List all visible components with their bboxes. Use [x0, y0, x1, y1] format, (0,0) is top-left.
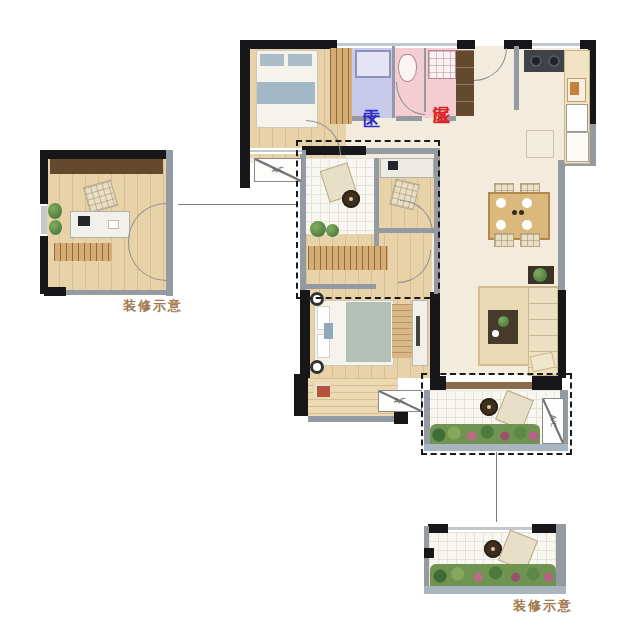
detail-study-wall-left-1: [40, 150, 48, 204]
stove-burner-left: [530, 55, 542, 67]
master-tv: [416, 316, 420, 346]
bedroom1-pillow-left: [260, 54, 284, 66]
toilet: [398, 54, 417, 82]
detail-balcony-block-left: [424, 548, 434, 558]
callout-connector-bottom: [496, 452, 497, 522]
ac-platform-bedroom1: A/C: [254, 158, 302, 182]
detail-study-paper: [108, 220, 119, 229]
wall-kitchen-right-low: [589, 124, 596, 164]
wall-left: [240, 40, 250, 188]
living-plant: [533, 268, 547, 282]
detail-study-wall-top: [44, 150, 168, 159]
callout-rect-study: [296, 140, 440, 299]
detail-study-wardrobe-top: [50, 158, 163, 174]
detail-study-plant-1: [48, 203, 62, 219]
floor-plan-canvas: A/C 干区 湿区: [0, 0, 640, 640]
detail-study-plant-2: [49, 220, 62, 235]
kitchen-island-1: [526, 130, 554, 158]
detail-caption-bottom: 装修示意: [498, 597, 588, 613]
detail-balcony-wall-top-1: [428, 524, 448, 533]
washbasin: [355, 50, 391, 78]
laundry-item: [314, 383, 330, 397]
master-blanket: [346, 302, 391, 362]
ac-label-2: A/C: [394, 397, 406, 405]
bedroom1-pillow-right: [288, 54, 312, 66]
counter-bottle: [570, 82, 579, 95]
detail-balcony-window: [448, 525, 532, 532]
wall-dry-wet-divider: [392, 46, 395, 118]
kitchen-sink: [566, 104, 588, 132]
wall-master-bottom: [308, 416, 400, 422]
dry-zone-label: 干区: [362, 78, 380, 120]
detail-balcony-bottom-trim: [424, 586, 566, 594]
coffee-table-plant: [498, 316, 509, 327]
entry-cabinet: [456, 50, 474, 116]
ac-platform-master: A/C: [378, 390, 422, 412]
ac-label-1: A/C: [272, 166, 284, 174]
wall-living-right-dark: [558, 290, 566, 378]
master-lamp-bottom: [310, 360, 324, 374]
window-top-bath: [337, 41, 457, 48]
wall-kitchen-left: [514, 46, 519, 110]
window-bedroom1-bottom: [250, 148, 302, 154]
bedroom1-blanket: [257, 82, 315, 104]
wall-master-left: [300, 290, 310, 378]
detail-study-wall-left-2: [40, 236, 48, 294]
detail-study-wall-right: [166, 150, 173, 296]
window-top-kitchen: [532, 41, 582, 48]
coffee-table-plate: [492, 330, 499, 337]
bedroom1-wardrobe: [330, 48, 352, 124]
wall-bath-bottom-3: [438, 116, 456, 121]
wall-master-right: [430, 292, 440, 378]
refrigerator: [566, 132, 589, 162]
wall-living-right: [558, 166, 565, 290]
stove-burner-right: [548, 55, 560, 67]
dining-plates: [496, 198, 506, 208]
wall-bottom-left-block: [294, 374, 308, 416]
master-pillow-accent: [324, 323, 333, 339]
detail-balcony-flowerbed: [430, 564, 556, 586]
detail-study-laptop: [78, 216, 90, 226]
wall-top-2: [457, 40, 475, 49]
dining-chair-bottom-right: [520, 233, 540, 247]
callout-connector-left: [178, 204, 296, 205]
dining-centerpiece: [512, 210, 517, 215]
detail-study-wall-bottom-1: [44, 287, 66, 296]
detail-balcony-wall-right: [556, 524, 566, 594]
dining-chair-bottom-left: [494, 233, 514, 247]
callout-rect-balcony: [421, 373, 572, 455]
detail-study-wall-bottom-2: [66, 290, 167, 295]
wet-zone-label: 湿区: [432, 74, 450, 116]
wall-top-1: [247, 40, 337, 49]
detail-study-hanger-rod: [54, 243, 112, 261]
wall-bath-bottom-2: [396, 116, 422, 121]
wall-bottom-block-2: [394, 410, 408, 424]
detail-study-window: [41, 204, 47, 236]
master-tv-console: [412, 300, 428, 366]
detail-caption-left: 装修示意: [108, 297, 198, 313]
